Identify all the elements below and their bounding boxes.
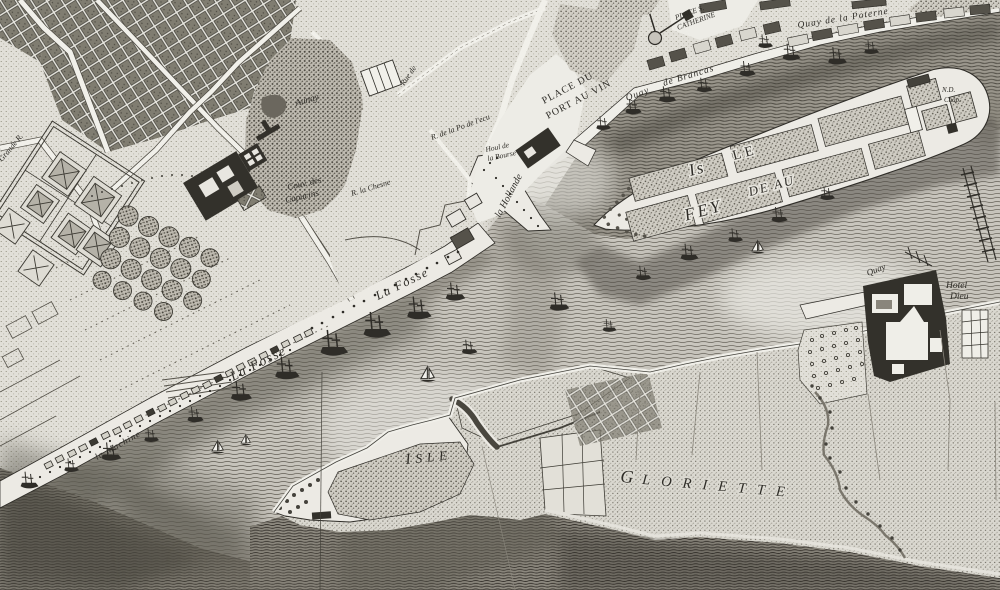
svg-text:Chap.: Chap. [944,96,961,104]
svg-text:Hotel: Hotel [945,281,967,291]
svg-text:N.D.: N.D. [941,86,955,94]
svg-text:Dieu: Dieu [949,292,969,302]
